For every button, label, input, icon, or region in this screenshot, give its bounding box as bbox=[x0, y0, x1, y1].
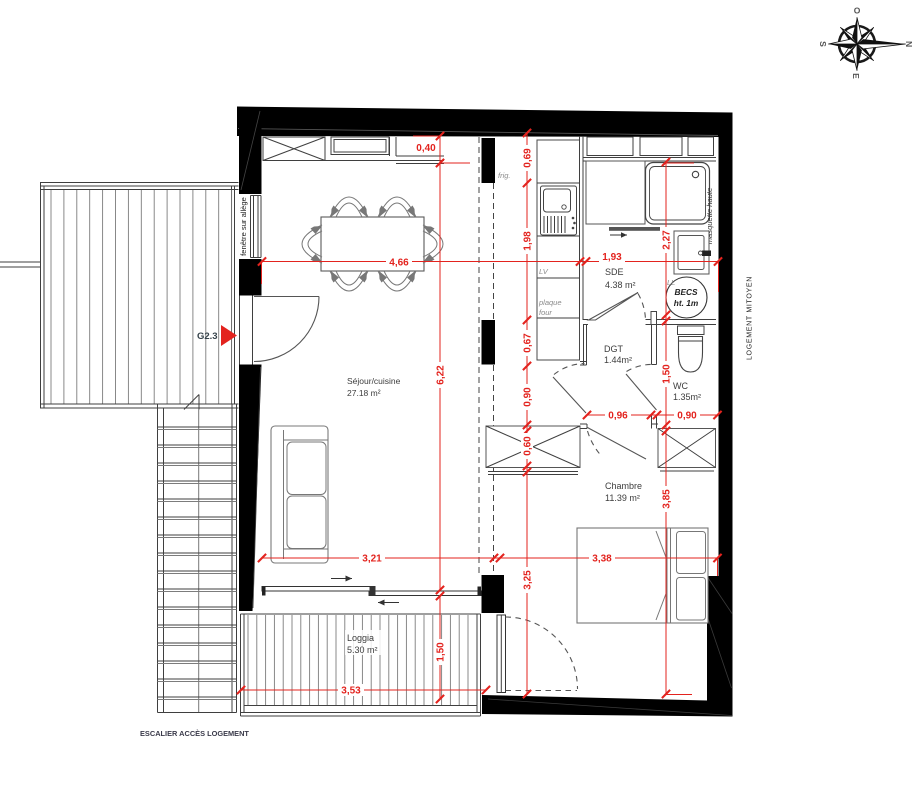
svg-text:2,27: 2,27 bbox=[662, 230, 673, 250]
svg-text:ht. 1m: ht. 1m bbox=[674, 298, 699, 308]
svg-text:four: four bbox=[539, 308, 552, 317]
svg-text:G2.3: G2.3 bbox=[197, 331, 218, 342]
svg-text:3,85: 3,85 bbox=[662, 489, 673, 509]
svg-text:0,40: 0,40 bbox=[416, 143, 436, 154]
svg-text:S: S bbox=[818, 41, 828, 47]
svg-text:0,67: 0,67 bbox=[523, 333, 534, 353]
svg-text:frig.: frig. bbox=[498, 171, 511, 180]
svg-text:4.38 m²: 4.38 m² bbox=[605, 280, 636, 290]
svg-text:N: N bbox=[904, 41, 914, 47]
svg-text:5.30 m²: 5.30 m² bbox=[347, 645, 378, 655]
svg-text:ESCALIER ACCÈS LOGEMENT: ESCALIER ACCÈS LOGEMENT bbox=[140, 729, 249, 738]
svg-text:0,96: 0,96 bbox=[608, 411, 628, 422]
svg-text:fenêtre sur allège: fenêtre sur allège bbox=[239, 197, 248, 256]
svg-text:Séjour/cuisine: Séjour/cuisine bbox=[347, 376, 401, 386]
svg-text:6,22: 6,22 bbox=[436, 365, 447, 385]
svg-text:3,21: 3,21 bbox=[362, 554, 382, 565]
svg-text:Loggia: Loggia bbox=[347, 633, 374, 643]
svg-text:LV: LV bbox=[539, 267, 549, 276]
svg-text:1.44m²: 1.44m² bbox=[604, 355, 632, 365]
svg-text:Chambre: Chambre bbox=[605, 481, 642, 491]
svg-text:4,66: 4,66 bbox=[389, 258, 409, 269]
svg-text:0,90: 0,90 bbox=[677, 411, 697, 422]
svg-text:1,50: 1,50 bbox=[436, 642, 447, 662]
svg-text:O: O bbox=[854, 6, 861, 16]
svg-text:1,98: 1,98 bbox=[523, 231, 534, 251]
svg-text:3,53: 3,53 bbox=[341, 686, 361, 697]
svg-text:DGT: DGT bbox=[604, 344, 624, 354]
svg-text:BECS: BECS bbox=[674, 287, 698, 297]
svg-text:SDE: SDE bbox=[605, 267, 624, 277]
svg-text:WC: WC bbox=[673, 381, 688, 391]
svg-text:0,69: 0,69 bbox=[523, 148, 534, 168]
svg-text:plaque: plaque bbox=[538, 298, 562, 307]
svg-text:0,60: 0,60 bbox=[523, 436, 534, 456]
svg-text:0,90: 0,90 bbox=[523, 387, 534, 407]
svg-text:3,38: 3,38 bbox=[592, 554, 612, 565]
svg-text:11.39 m²: 11.39 m² bbox=[605, 493, 640, 503]
svg-text:3,25: 3,25 bbox=[523, 570, 534, 590]
svg-text:1,93: 1,93 bbox=[602, 252, 622, 263]
svg-text:LL: LL bbox=[667, 278, 675, 287]
svg-text:1.35m²: 1.35m² bbox=[673, 392, 701, 402]
svg-text:E: E bbox=[851, 73, 861, 79]
svg-text:1,50: 1,50 bbox=[662, 364, 673, 384]
svg-text:27.18 m²: 27.18 m² bbox=[347, 388, 381, 398]
svg-text:LOGEMENT MITOYEN: LOGEMENT MITOYEN bbox=[747, 276, 754, 360]
